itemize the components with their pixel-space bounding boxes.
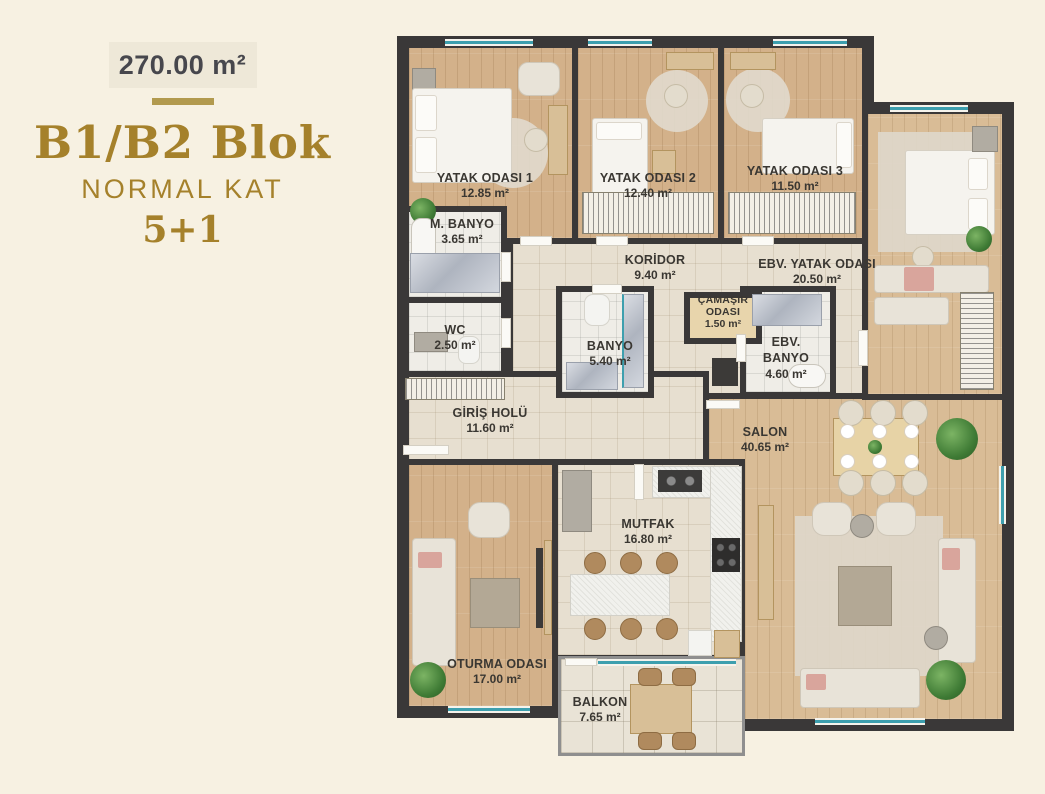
room-label-ebv-yatak-odasi: EBV. YATAK ODASI 20.50 m²	[737, 256, 897, 288]
kitchen-sink	[658, 470, 702, 492]
armchair	[876, 502, 916, 536]
side-table	[850, 514, 874, 538]
room-label-ebv-banyo: EBV. BANYO 4.60 m²	[750, 334, 822, 382]
wall	[703, 725, 1014, 731]
room-name: YATAK ODASI 2	[583, 170, 713, 186]
armchair	[812, 502, 852, 536]
room-label-yatak-odasi-3: YATAK ODASI 3 11.50 m²	[730, 163, 860, 195]
desk-chair	[740, 84, 764, 108]
dining-chair	[838, 400, 864, 426]
bar-stool	[620, 618, 642, 640]
room-area: 40.65 m²	[710, 440, 820, 456]
place-setting	[904, 424, 919, 439]
room-area: 17.00 m²	[420, 672, 574, 688]
armchair	[518, 62, 560, 96]
dining-chair	[838, 470, 864, 496]
room-name: MUTFAK	[588, 516, 708, 532]
pillow	[415, 95, 437, 131]
total-area-value: 270.00 m²	[119, 50, 247, 81]
window	[773, 39, 847, 46]
plant	[926, 660, 966, 700]
bar-stool	[656, 618, 678, 640]
total-area-badge: 270.00 m²	[109, 42, 257, 88]
washing-machine	[712, 358, 738, 386]
wall	[868, 36, 874, 108]
balcony-chair	[638, 668, 662, 686]
room-name: SALON	[710, 424, 820, 440]
balcony-chair	[638, 732, 662, 750]
room-area: 12.40 m²	[583, 186, 713, 202]
desk	[730, 52, 776, 70]
place-setting	[840, 454, 855, 469]
room-area: 7.65 m²	[555, 710, 645, 726]
balcony-chair	[672, 732, 696, 750]
door	[501, 252, 511, 282]
coffee-table	[838, 566, 892, 626]
room-area: 4.60 m²	[750, 367, 822, 383]
room-name: YATAK ODASI 1	[420, 170, 550, 186]
place-setting	[872, 424, 887, 439]
room-label-wc: WC 2.50 m²	[412, 322, 498, 354]
room-name: GİRİŞ HOLÜ	[425, 405, 555, 421]
window	[448, 706, 530, 713]
room-area: 11.60 m²	[425, 421, 555, 437]
wardrobe	[728, 192, 856, 234]
place-setting	[904, 454, 919, 469]
dishwasher	[688, 630, 712, 656]
pillow	[942, 548, 960, 570]
table-flowers	[868, 440, 882, 454]
desk	[548, 105, 568, 175]
room-area: 2.50 m²	[412, 338, 498, 354]
pillow	[806, 674, 826, 690]
gold-divider	[152, 98, 214, 105]
floor-plan-poster: 270.00 m² B1/B2 Blok NORMAL KAT 5+1	[0, 0, 1045, 794]
bar-stool	[584, 618, 606, 640]
door	[858, 330, 868, 366]
floor-subtitle: NORMAL KAT	[10, 174, 355, 205]
bar-stool	[584, 552, 606, 574]
window	[445, 39, 533, 46]
window	[999, 466, 1006, 524]
cooktop	[712, 538, 740, 572]
sideboard	[758, 505, 774, 620]
window	[598, 659, 736, 666]
dining-chair	[902, 400, 928, 426]
coffee-table	[470, 578, 520, 628]
room-name: ÇAMAŞIR ODASI	[690, 294, 756, 318]
pillow	[415, 137, 437, 173]
room-area: 5.40 m²	[570, 354, 650, 370]
pillow	[836, 122, 852, 168]
wall-unit	[972, 126, 998, 152]
dining-chair	[870, 400, 896, 426]
door	[520, 236, 552, 246]
bar-stool	[656, 552, 678, 574]
pillow	[596, 122, 642, 140]
room-label-m-banyo: M. BANYO 3.65 m²	[422, 216, 502, 248]
desk	[666, 52, 714, 70]
room-area: 16.80 m²	[588, 532, 708, 548]
room-name: WC	[412, 322, 498, 338]
dining-chair	[902, 470, 928, 496]
entrance-door	[403, 445, 449, 455]
wardrobe	[960, 292, 994, 390]
room-name: OTURMA ODASI	[420, 656, 574, 672]
service-shaft	[714, 630, 740, 658]
door	[634, 464, 644, 500]
room-area: 20.50 m²	[737, 272, 897, 288]
info-panel: 270.00 m² B1/B2 Blok NORMAL KAT 5+1	[10, 30, 355, 251]
tv-unit	[536, 548, 543, 628]
door	[736, 334, 746, 362]
room-label-yatak-odasi-2: YATAK ODASI 2 12.40 m²	[583, 170, 713, 202]
door	[596, 236, 628, 246]
window	[890, 105, 968, 112]
room-label-banyo: BANYO 5.40 m²	[570, 338, 650, 370]
shower	[410, 253, 500, 293]
room-label-koridor: KORİDOR 9.40 m²	[585, 252, 725, 284]
shower	[752, 294, 822, 326]
room-area: 11.50 m²	[730, 179, 860, 195]
plant	[966, 226, 992, 252]
room-label-balkon: BALKON 7.65 m²	[555, 694, 645, 726]
room-name: EBV. BANYO	[750, 334, 822, 367]
place-setting	[872, 454, 887, 469]
room-name: M. BANYO	[422, 216, 502, 232]
entry-wardrobe	[405, 378, 505, 400]
dining-chair	[870, 470, 896, 496]
room-label-oturma-odasi: OTURMA ODASI 17.00 m²	[420, 656, 574, 688]
room-name: EBV. YATAK ODASI	[737, 256, 897, 272]
wall	[1008, 102, 1014, 731]
room-label-yatak-odasi-1: YATAK ODASI 1 12.85 m²	[420, 170, 550, 202]
window	[588, 39, 652, 46]
room-area: 3.65 m²	[422, 232, 502, 248]
pillow	[418, 552, 442, 568]
room-name: YATAK ODASI 3	[730, 163, 860, 179]
side-table	[924, 626, 948, 650]
balcony-chair	[672, 668, 696, 686]
bar-stool	[620, 552, 642, 574]
vanity-tray	[904, 267, 934, 291]
desk-chair	[664, 84, 688, 108]
room-area: 9.40 m²	[585, 268, 725, 284]
desk-chair	[524, 128, 548, 152]
tv-console	[544, 540, 552, 635]
room-name: KORİDOR	[585, 252, 725, 268]
block-title: B1/B2 Blok	[10, 119, 355, 166]
room-label-salon: SALON 40.65 m²	[710, 424, 820, 456]
toilet	[584, 294, 610, 326]
room-label-camasir-odasi: ÇAMAŞIR ODASI 1.50 m²	[690, 294, 756, 331]
unit-type: 5+1	[10, 209, 355, 251]
plant	[936, 418, 978, 460]
door	[501, 318, 511, 348]
window	[815, 718, 925, 725]
kitchen-island	[570, 574, 670, 616]
door	[706, 400, 740, 409]
door	[742, 236, 774, 246]
room-name: BANYO	[570, 338, 650, 354]
room-area: 12.85 m²	[420, 186, 550, 202]
room-label-giris-holu: GİRİŞ HOLÜ 11.60 m²	[425, 405, 555, 437]
dresser	[874, 297, 949, 325]
pillow	[968, 158, 988, 190]
armchair	[468, 502, 510, 538]
place-setting	[840, 424, 855, 439]
door	[592, 284, 622, 294]
room-label-mutfak: MUTFAK 16.80 m²	[588, 516, 708, 548]
room-name: BALKON	[555, 694, 645, 710]
room-area: 1.50 m²	[690, 318, 756, 331]
